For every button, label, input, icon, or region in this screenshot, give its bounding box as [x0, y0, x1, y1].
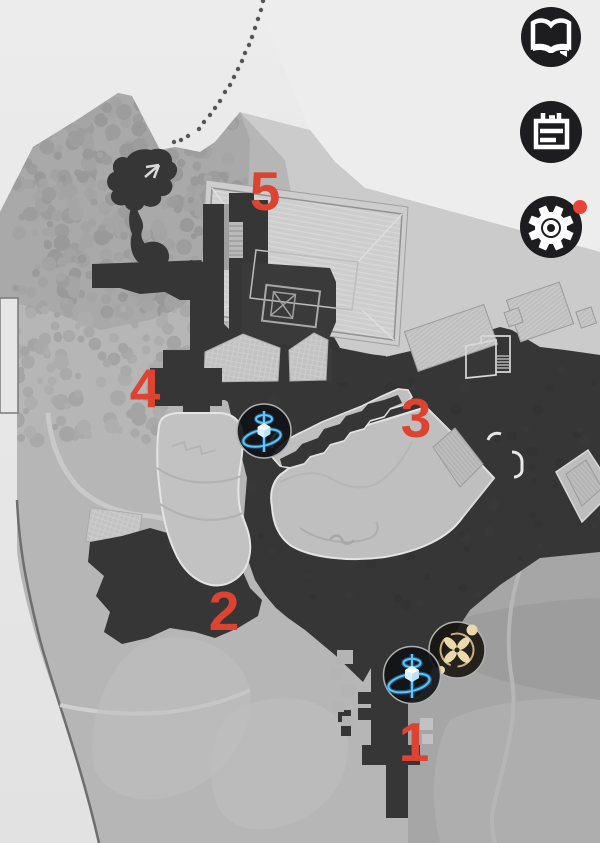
svg-text:2: 2	[209, 580, 240, 642]
svg-text:4: 4	[130, 357, 161, 419]
svg-text:3: 3	[401, 387, 432, 449]
svg-text:5: 5	[250, 160, 281, 222]
svg-text:1: 1	[399, 711, 430, 773]
